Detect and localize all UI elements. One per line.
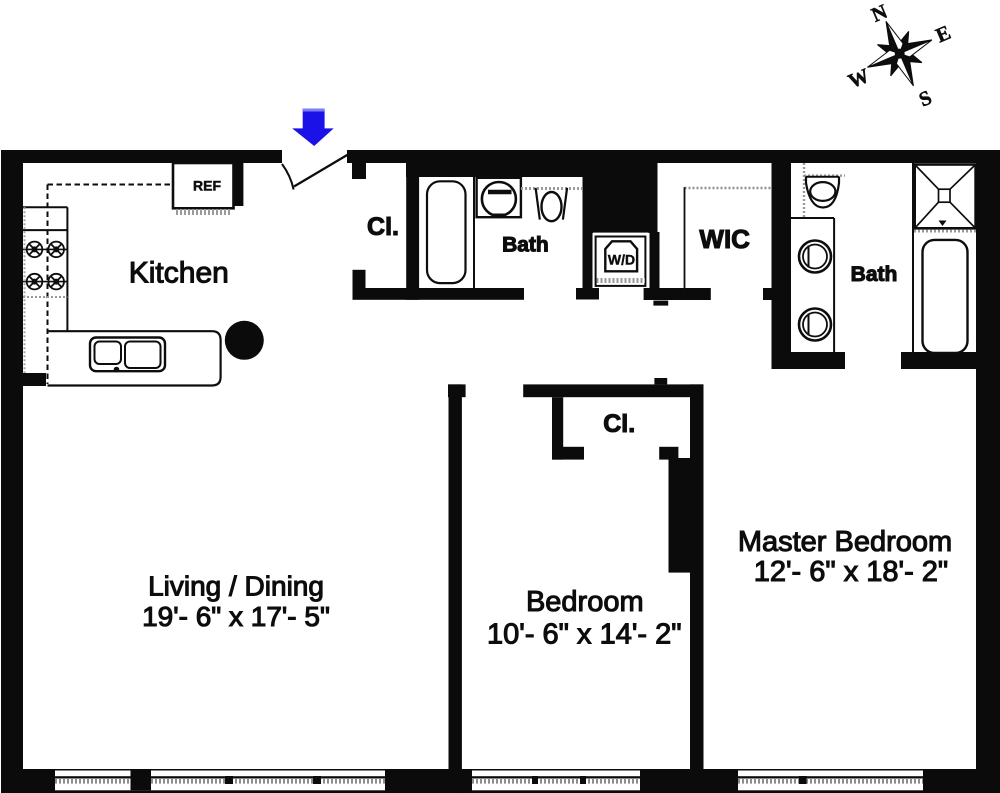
svg-text:Cl.: Cl. [603, 410, 635, 438]
svg-text:12'- 6" x 18'- 2": 12'- 6" x 18'- 2" [754, 556, 948, 588]
svg-text:REF: REF [193, 178, 221, 194]
svg-text:10'- 6" x 14'- 2": 10'- 6" x 14'- 2" [487, 619, 681, 651]
svg-text:WIC: WIC [699, 224, 750, 254]
svg-text:Bath: Bath [851, 263, 898, 286]
svg-text:Kitchen: Kitchen [129, 257, 229, 290]
svg-text:Master Bedroom: Master Bedroom [738, 526, 952, 558]
svg-text:Bath: Bath [502, 234, 549, 257]
svg-text:Living / Dining: Living / Dining [148, 571, 324, 602]
svg-text:Bedroom: Bedroom [526, 586, 644, 618]
svg-text:W/D: W/D [608, 252, 635, 268]
svg-text:19'- 6" x 17'- 5": 19'- 6" x 17'- 5" [142, 601, 330, 632]
svg-text:Cl.: Cl. [367, 213, 399, 241]
